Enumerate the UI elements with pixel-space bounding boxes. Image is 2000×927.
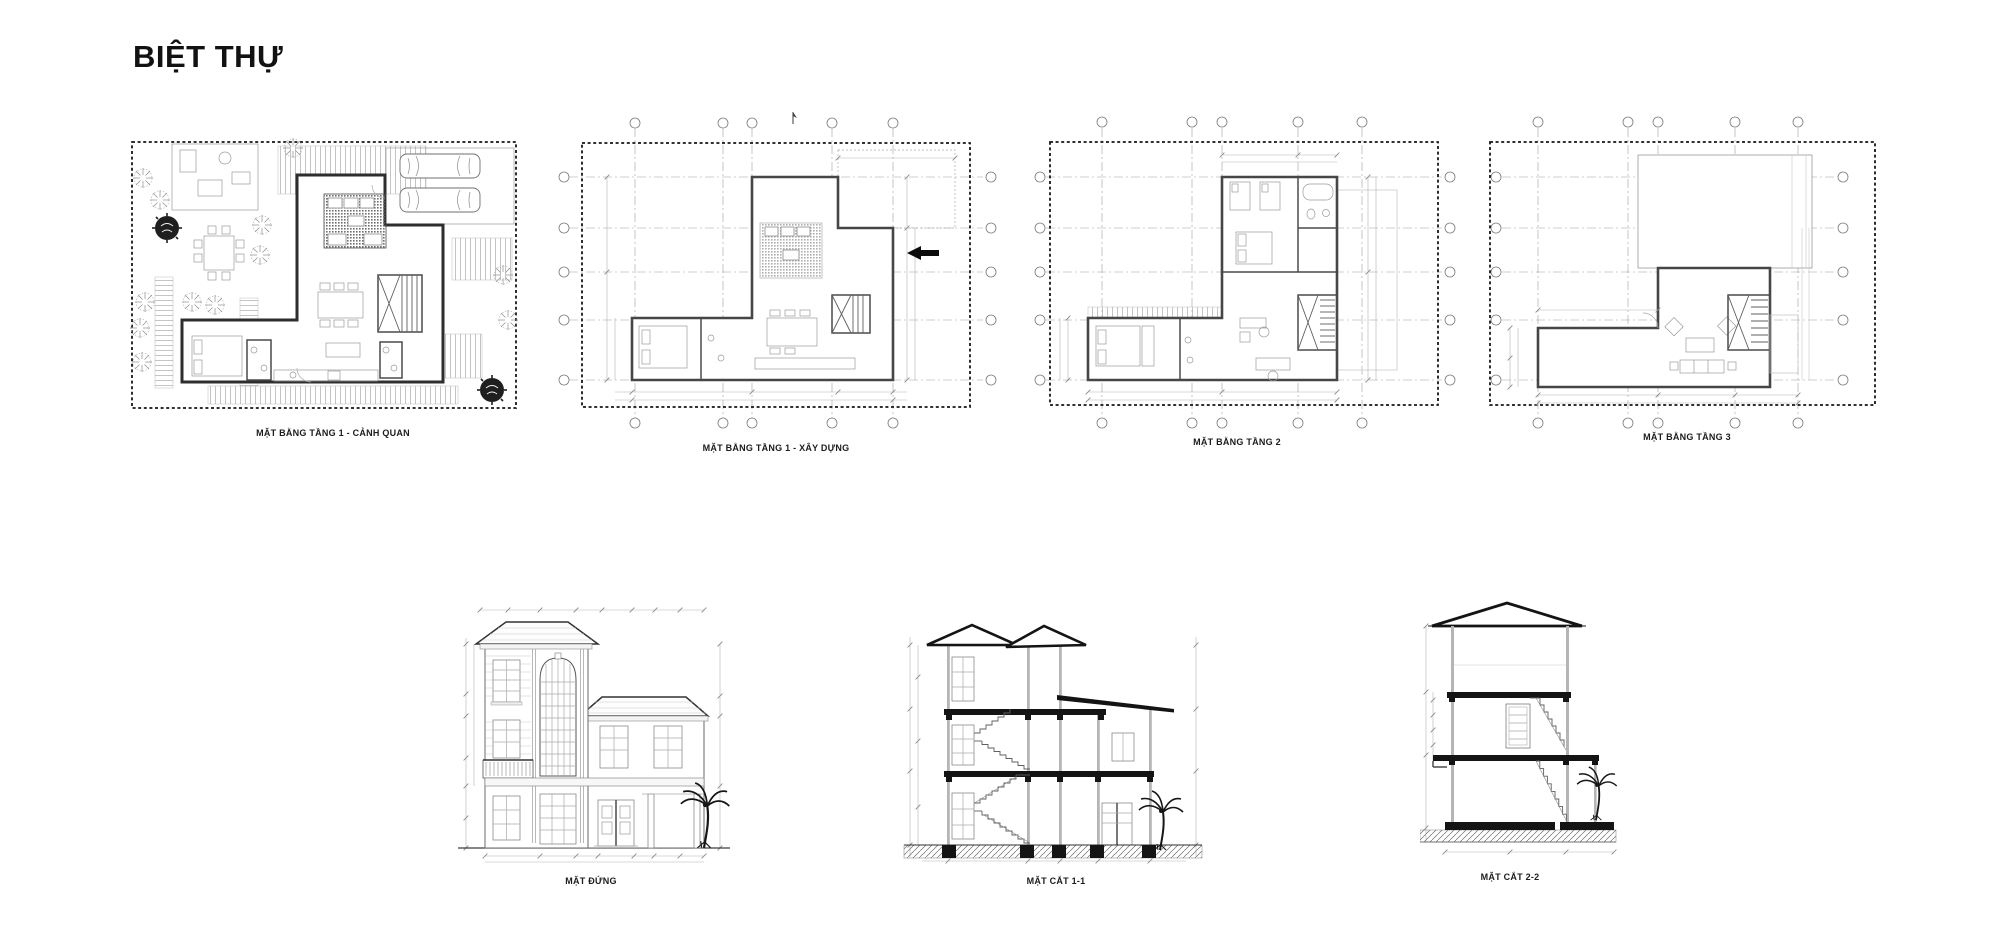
landscape-plan-figure bbox=[128, 138, 520, 413]
openings bbox=[952, 657, 1134, 845]
roof-terrace-outline bbox=[1337, 190, 1397, 370]
floor-band bbox=[485, 778, 704, 786]
front-elevation-label: MẶT ĐỨNG bbox=[565, 876, 616, 886]
section-2-2-label: MẶT CẮT 2-2 bbox=[1481, 872, 1540, 882]
section-2-2-figure bbox=[1420, 600, 1630, 862]
landscape-plan-drawing bbox=[128, 138, 520, 413]
section-1-1-figure bbox=[902, 617, 1205, 867]
tower-roof bbox=[476, 622, 598, 644]
side-annex-outline bbox=[1770, 315, 1798, 373]
door-swing bbox=[1643, 313, 1658, 328]
section-cut-arrow-icon bbox=[907, 246, 939, 260]
wing-cornice bbox=[584, 716, 708, 721]
level2-plan-label: MẶT BẰNG TẦNG 2 bbox=[1193, 437, 1281, 447]
level2-plan-drawing bbox=[1030, 110, 1460, 430]
house-walls bbox=[632, 177, 893, 380]
balcony-railing bbox=[483, 760, 533, 778]
landscape-plan-label: MẶT BẰNG TẦNG 1 - CẢNH QUAN bbox=[256, 428, 410, 438]
north-mark-icon bbox=[793, 112, 797, 124]
level3-plan-drawing bbox=[1480, 110, 1890, 430]
right-wing-roof bbox=[580, 697, 708, 716]
front-elevation-drawing bbox=[452, 598, 737, 870]
dumbwaiter-cabinet bbox=[1506, 704, 1530, 748]
construction-plan-label: MẶT BẰNG TẦNG 1 - XÂY DỰNG bbox=[703, 443, 850, 453]
house-walls bbox=[1538, 268, 1770, 387]
construction-plan-drawing bbox=[555, 110, 1000, 435]
roof-section bbox=[1428, 603, 1586, 626]
balcony-hatch bbox=[1088, 307, 1222, 317]
garage-roof-outline bbox=[838, 150, 955, 228]
patio-terrace bbox=[172, 144, 258, 210]
tower-cornice bbox=[480, 644, 592, 649]
palm-tree-icon bbox=[1139, 791, 1183, 850]
drawing-sheet: BIỆT THỰ bbox=[0, 0, 2000, 927]
level2-plan-figure bbox=[1030, 110, 1460, 430]
level3-plan-figure bbox=[1480, 110, 1890, 430]
arched-window bbox=[540, 653, 576, 776]
section-1-1-label: MẶT CẮT 1-1 bbox=[1027, 876, 1086, 886]
dimension-lines bbox=[908, 637, 1199, 863]
ground-hatch bbox=[1420, 822, 1616, 842]
front-elevation-figure bbox=[452, 598, 737, 870]
palm-tree-icon bbox=[1577, 767, 1617, 820]
construction-plan-figure bbox=[555, 110, 1000, 435]
page-title: BIỆT THỰ bbox=[133, 39, 283, 75]
section-1-1-drawing bbox=[902, 617, 1205, 867]
level3-plan-label: MẶT BẰNG TẦNG 3 bbox=[1643, 432, 1731, 442]
section-2-2-drawing bbox=[1420, 600, 1630, 862]
